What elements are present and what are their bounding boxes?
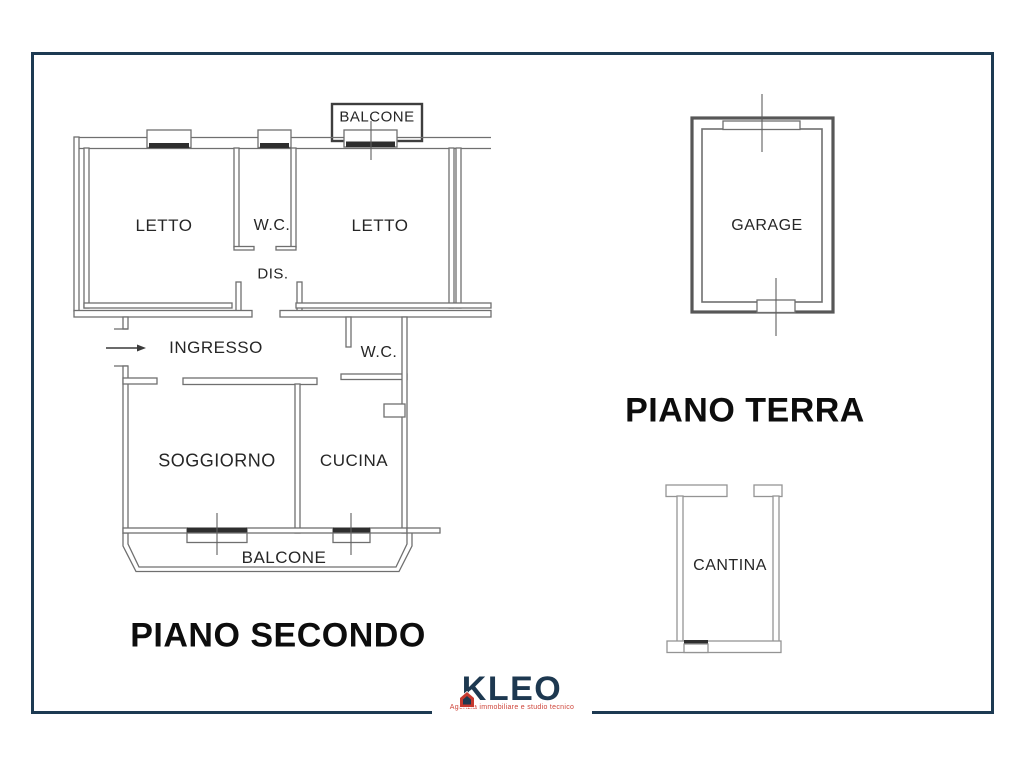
- room-label-wc-mid: W.C.: [361, 344, 398, 362]
- floor-title-piano-secondo: PIANO SECONDO: [130, 617, 426, 656]
- room-label-cantina: CANTINA: [693, 557, 767, 575]
- room-label-garage: GARAGE: [731, 217, 802, 235]
- room-label-letto-left: LETTO: [136, 216, 193, 236]
- floor-title-piano-terra: PIANO TERRA: [625, 392, 865, 431]
- kleo-logo: KLEO Agenzia immobiliare e studio tecnic…: [432, 671, 592, 724]
- kleo-logo-text: KLEO: [462, 671, 562, 708]
- room-label-wc-top: W.C.: [254, 217, 291, 235]
- floorplan-garage: [692, 94, 833, 336]
- room-label-ingresso: INGRESSO: [169, 338, 263, 358]
- room-label-balcone-bottom: BALCONE: [242, 548, 327, 568]
- floorplan-piano-secondo: [74, 104, 491, 572]
- kleo-house-icon: [459, 691, 475, 708]
- room-label-letto-right: LETTO: [352, 216, 409, 236]
- room-label-balcone-top: BALCONE: [339, 109, 414, 126]
- room-label-soggiorno: SOGGIORNO: [158, 451, 276, 472]
- entry-arrow: [106, 345, 146, 352]
- room-label-dis: DIS.: [257, 266, 288, 283]
- floorplan-page: BALCONE LETTO W.C. LETTO DIS. INGRESSO W…: [0, 0, 1024, 768]
- kleo-logo-tagline: Agenzia immobiliare e studio tecnico: [432, 704, 592, 711]
- room-label-cucina: CUCINA: [320, 451, 388, 471]
